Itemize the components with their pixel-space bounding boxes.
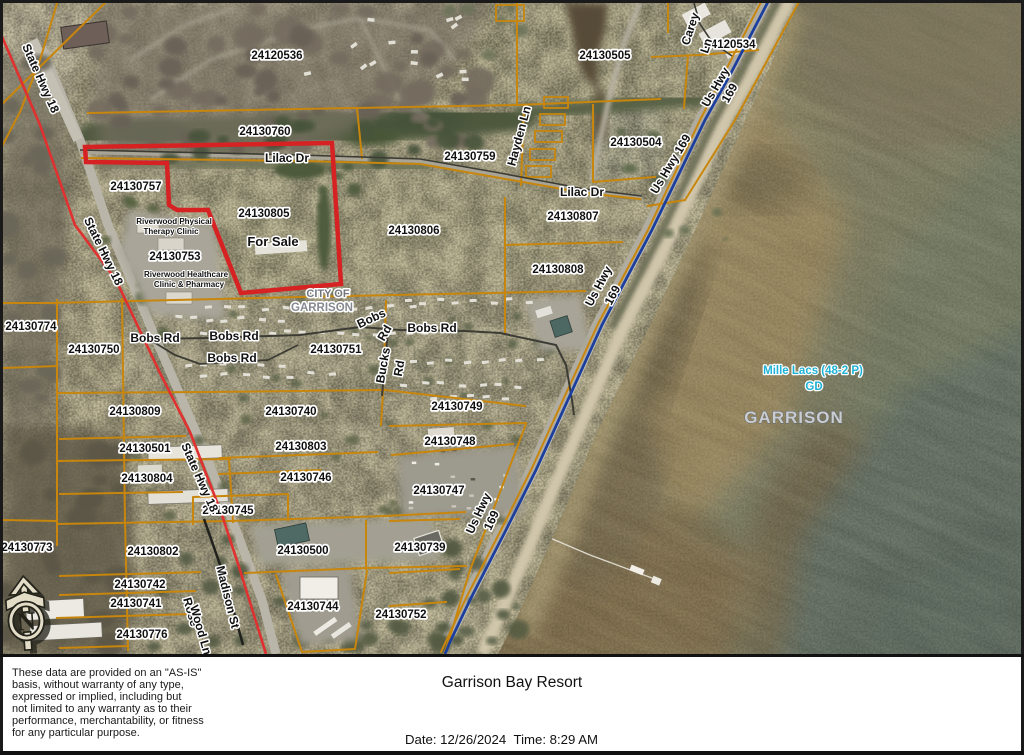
svg-text:24130759: 24130759	[444, 151, 495, 163]
svg-text:GD: GD	[805, 381, 822, 393]
svg-text:24130741: 24130741	[110, 598, 162, 610]
svg-text:24130752: 24130752	[375, 609, 426, 621]
svg-text:24130805: 24130805	[238, 208, 290, 220]
svg-text:CITY OF: CITY OF	[306, 288, 349, 300]
svg-text:Riverwood Healthcare: Riverwood Healthcare	[144, 270, 229, 279]
svg-text:N: N	[16, 606, 37, 636]
svg-text:Bobs Rd: Bobs Rd	[130, 331, 179, 345]
svg-text:24120536: 24120536	[251, 50, 302, 62]
svg-text:24130808: 24130808	[532, 264, 584, 276]
svg-text:24130750: 24130750	[68, 344, 119, 356]
svg-text:24130809: 24130809	[109, 406, 160, 418]
svg-text:GARRISON: GARRISON	[291, 302, 353, 314]
svg-text:not limited to any warranty as: not limited to any warranty as to their	[12, 703, 192, 715]
svg-text:24130803: 24130803	[275, 441, 326, 453]
svg-text:24130501: 24130501	[119, 443, 171, 455]
svg-text:Therapy Clinic: Therapy Clinic	[143, 227, 199, 236]
svg-text:24130746: 24130746	[280, 472, 331, 484]
svg-text:24130802: 24130802	[127, 546, 178, 558]
svg-text:24130751: 24130751	[310, 344, 362, 356]
svg-text:For Sale: For Sale	[247, 234, 298, 249]
svg-text:24130753: 24130753	[149, 251, 200, 263]
svg-text:24130804: 24130804	[121, 473, 173, 485]
svg-text:basis, without warranty of any: basis, without warranty of any type,	[12, 679, 184, 691]
svg-text:expressed or implied, includin: expressed or implied, including but	[12, 691, 181, 703]
svg-text:24130760: 24130760	[239, 126, 290, 138]
svg-text:Garrison Bay Resort: Garrison Bay Resort	[442, 674, 583, 691]
svg-text:24130505: 24130505	[579, 50, 631, 62]
svg-text:Bobs Rd: Bobs Rd	[407, 321, 456, 335]
svg-text:performance, merchantability,: performance, merchantability, or fitness	[12, 715, 204, 727]
svg-text:Bobs Rd: Bobs Rd	[209, 329, 258, 343]
svg-text:GARRISON: GARRISON	[744, 408, 844, 427]
svg-text:24130744: 24130744	[287, 601, 339, 613]
svg-text:Riverwood Physical: Riverwood Physical	[136, 217, 212, 226]
svg-text:24130807: 24130807	[547, 211, 598, 223]
svg-text:24130776: 24130776	[116, 629, 167, 641]
svg-text:24130500: 24130500	[277, 545, 328, 557]
svg-text:24130757: 24130757	[110, 181, 161, 193]
svg-text:Mille Lacs (48-2 P): Mille Lacs (48-2 P)	[763, 365, 863, 377]
svg-text:24130504: 24130504	[610, 137, 662, 149]
svg-text:These data are provided on an: These data are provided on an "AS-IS"	[12, 667, 202, 679]
svg-text:24130806: 24130806	[388, 225, 439, 237]
svg-text:Lilac Dr: Lilac Dr	[265, 151, 309, 165]
svg-text:24130748: 24130748	[424, 436, 476, 448]
svg-text:24130774: 24130774	[5, 321, 57, 333]
svg-text:Bobs Rd: Bobs Rd	[207, 351, 256, 365]
svg-text:24130739: 24130739	[394, 542, 445, 554]
svg-text:24130747: 24130747	[413, 485, 464, 497]
svg-text:for any particular purpose.: for any particular purpose.	[12, 727, 140, 739]
svg-text:Date: 12/26/2024 Time: 8:29 A: Date: 12/26/2024 Time: 8:29 AM	[405, 732, 598, 747]
svg-text:24130749: 24130749	[431, 401, 482, 413]
svg-text:24130773: 24130773	[1, 542, 52, 554]
svg-text:24130742: 24130742	[114, 579, 165, 591]
svg-text:Rd: Rd	[391, 359, 408, 377]
svg-text:Lilac Dr: Lilac Dr	[560, 185, 604, 199]
svg-text:Clinic & Pharmacy: Clinic & Pharmacy	[154, 280, 225, 289]
svg-text:24130740: 24130740	[265, 406, 316, 418]
